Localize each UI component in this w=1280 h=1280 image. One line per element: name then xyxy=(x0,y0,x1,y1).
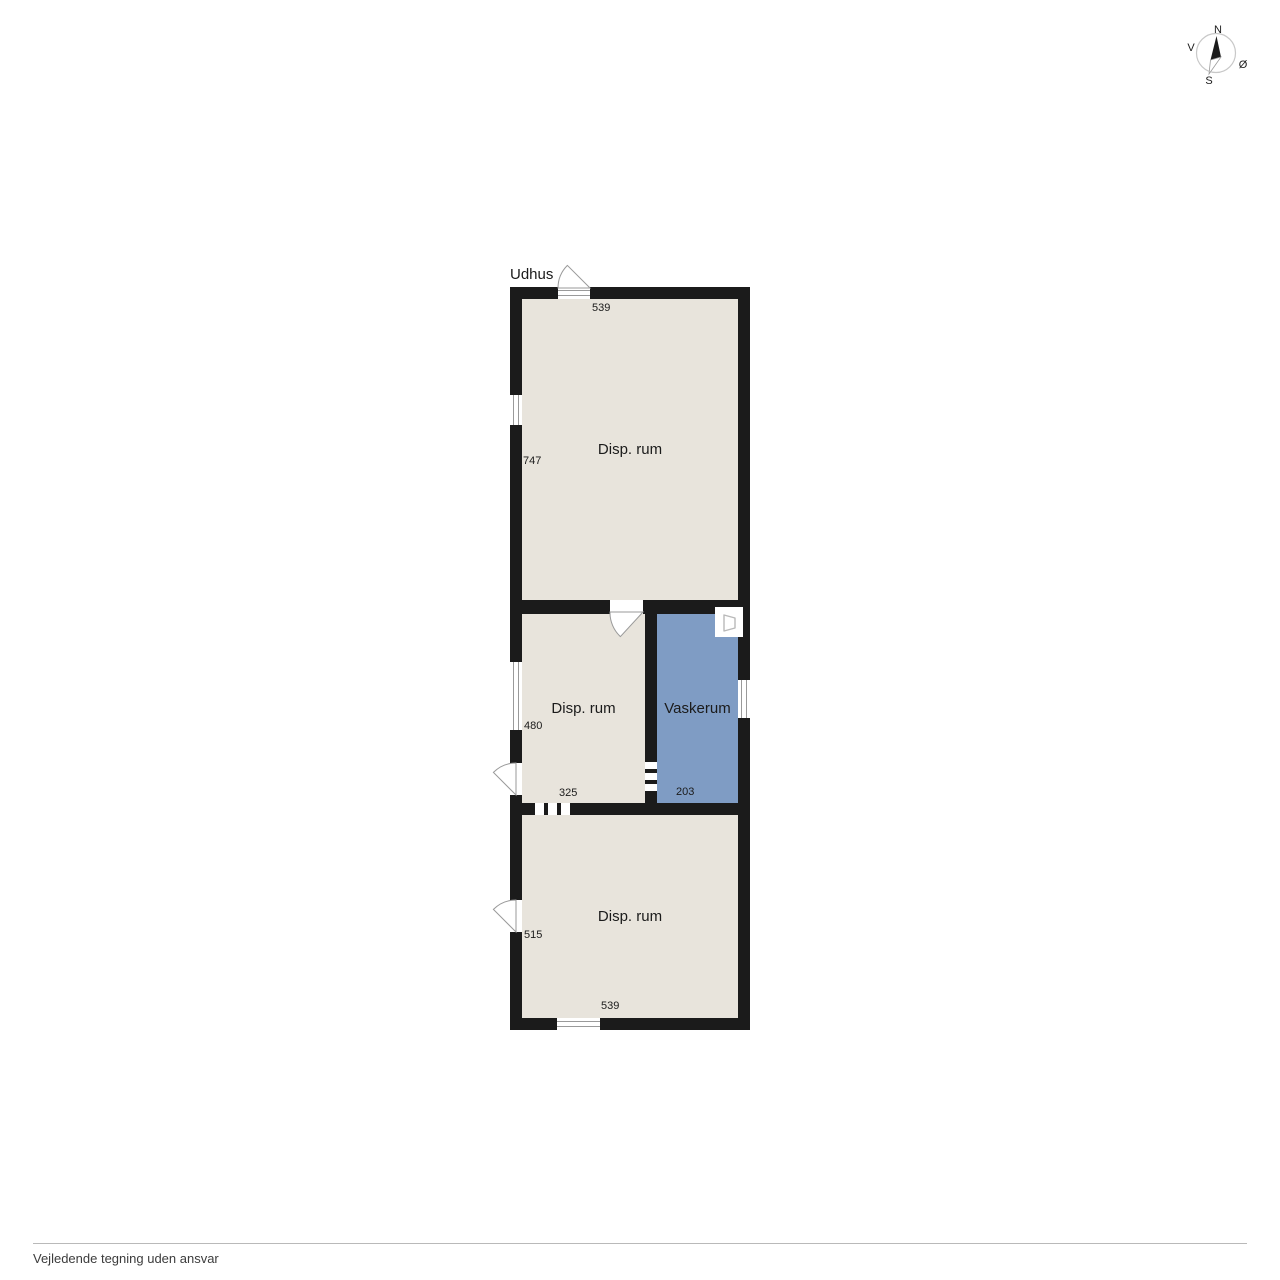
window-glass xyxy=(513,662,519,730)
washing-machine-glyph xyxy=(715,607,743,637)
room-disp-rum-middle: Disp. rum xyxy=(522,614,645,803)
room-label: Disp. rum xyxy=(598,441,662,458)
dimension-width-bottom-room: 539 xyxy=(601,1000,619,1012)
footer-divider xyxy=(33,1243,1247,1244)
compass-graphic: N V Ø S xyxy=(1183,20,1253,90)
window-left-middle-room xyxy=(510,662,522,730)
door-opening-interior xyxy=(610,600,643,614)
compass-label-south: S xyxy=(1205,75,1212,87)
door-threshold xyxy=(558,290,590,296)
compass-label-west: V xyxy=(1187,42,1195,54)
compass-rose: N V Ø S xyxy=(1183,20,1253,90)
dimension-height-middle-room: 480 xyxy=(524,720,542,732)
window-glass xyxy=(513,395,519,425)
room-label: Disp. rum xyxy=(598,908,662,925)
dimension-width-middle-room: 325 xyxy=(559,787,577,799)
window-bottom-room xyxy=(557,1018,600,1030)
window-glass xyxy=(741,680,747,718)
door-opening-left-middle xyxy=(510,763,522,795)
dimension-width-vaskerum: 203 xyxy=(676,786,694,798)
door-opening-top xyxy=(558,287,590,299)
room-disp-rum-bottom: Disp. rum xyxy=(522,815,738,1018)
window-left-top-room xyxy=(510,395,522,425)
room-label: Disp. rum xyxy=(551,700,615,717)
door-arc-top xyxy=(558,265,590,288)
footer-disclaimer: Vejledende tegning uden ansvar xyxy=(33,1251,219,1266)
door-opening-left-bottom xyxy=(510,900,522,932)
room-disp-rum-top: Disp. rum xyxy=(522,299,738,600)
window-right-vaskerum xyxy=(738,680,750,718)
dimension-width-top-room: 539 xyxy=(592,302,610,314)
page-title: Udhus xyxy=(510,266,553,283)
room-label: Vaskerum xyxy=(664,700,730,717)
compass-label-north: N xyxy=(1214,24,1222,36)
washing-machine-icon xyxy=(715,607,743,637)
compass-needle-north xyxy=(1211,36,1222,60)
dashed-opening-bottom-divider xyxy=(535,803,573,815)
dimension-height-top-room: 747 xyxy=(523,455,541,467)
compass-label-east: Ø xyxy=(1239,59,1248,71)
dashed-opening-vaskerum-wall xyxy=(645,762,657,795)
window-glass xyxy=(557,1021,600,1027)
dimension-height-bottom-room: 515 xyxy=(524,929,542,941)
room-vaskerum: Vaskerum xyxy=(657,614,738,803)
compass-needle-south xyxy=(1209,57,1221,74)
